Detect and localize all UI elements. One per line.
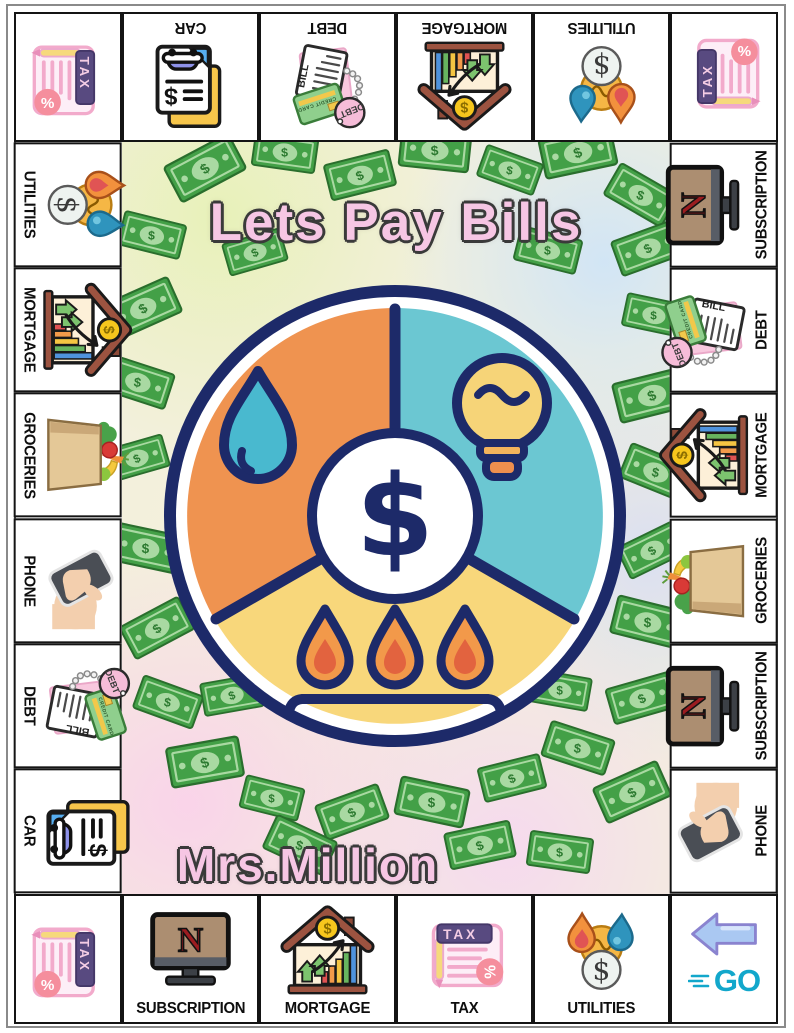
money-bill: $ (238, 774, 306, 822)
dollar-sign: $ (635, 690, 648, 707)
space-label: TAX (451, 999, 479, 1023)
dollar-sign: $ (142, 540, 150, 556)
space-label: GROCERIES (16, 412, 40, 499)
groceries-icon (39, 407, 112, 504)
subscription-icon (679, 657, 752, 754)
utilities-icon (553, 38, 650, 122)
space-left-phone: PHONE (14, 518, 122, 643)
mortgage-icon (416, 38, 513, 122)
space-label: DEBT (16, 686, 40, 725)
space-bottom-subscription: SUBSCRIPTION (122, 894, 259, 1024)
space-label: GROCERIES (752, 537, 776, 624)
svg-text:$: $ (356, 452, 434, 582)
dollar-sign: $ (268, 791, 275, 805)
space-left-car: CAR (14, 769, 122, 894)
speed-dashes-icon (688, 972, 710, 990)
space-left-utilities: UTILITIES (14, 142, 122, 267)
car-icon (142, 38, 239, 122)
page-title: Lets Pay Bills (122, 192, 670, 253)
space-label: UTILITIES (16, 171, 40, 239)
debt-icon (679, 282, 752, 379)
corner-go: GO (670, 894, 778, 1024)
space-right-mortgage: MORTGAGE (670, 393, 778, 518)
phone-icon (679, 783, 752, 880)
space-top-debt: DEBT (259, 12, 396, 142)
dollar-sign: $ (428, 794, 436, 810)
dollar-sign: $ (644, 614, 653, 630)
go-label: GO (714, 963, 760, 999)
subscription-icon (142, 915, 239, 999)
space-top-mortgage: MORTGAGE (396, 12, 533, 142)
money-bill: $ (476, 753, 547, 804)
tax-icon (21, 30, 116, 125)
utilities-icon (39, 156, 112, 253)
money-bill: $ (251, 142, 320, 174)
dollar-sign: $ (197, 159, 213, 177)
dollar-sign: $ (506, 770, 518, 786)
space-label: MORTGAGE (16, 287, 40, 372)
tax-icon (21, 912, 116, 1007)
space-right-debt: DEBT (670, 267, 778, 392)
dollar-sign: $ (645, 386, 659, 404)
space-label: PHONE (752, 806, 776, 857)
money-bill: $ (397, 142, 472, 174)
groceries-icon (679, 532, 752, 629)
space-label: UTILITIES (568, 14, 636, 38)
space-right-phone: PHONE (670, 769, 778, 894)
space-label: SUBSCRIPTION (752, 150, 776, 259)
mortgage-icon (279, 915, 376, 999)
go-arrow-icon (686, 909, 762, 959)
space-bottom-utilities: UTILITIES (533, 894, 670, 1024)
space-label: SUBSCRIPTION (752, 651, 776, 760)
space-right-subscription: SUBSCRIPTION (670, 142, 778, 267)
tax-icon (677, 30, 772, 125)
corner-tax-bottom-left (14, 894, 122, 1024)
space-top-car: CAR (122, 12, 259, 142)
money-bill: $ (526, 830, 595, 875)
debt-icon (39, 657, 112, 754)
utilities-wheel: $ (162, 283, 628, 749)
space-right-groceries: GROCERIES (670, 518, 778, 643)
dollar-sign: $ (431, 142, 440, 158)
mortgage-icon (39, 281, 112, 378)
mortgage-icon (679, 407, 752, 504)
space-left-mortgage: MORTGAGE (14, 267, 122, 392)
dollar-sign: $ (345, 804, 359, 821)
money-bill: $ (537, 142, 619, 180)
board-game-page: $ $ $ $ $ $ $ $ $ $ $ $ $ $ $ $ $ $ $ $ … (0, 0, 794, 1033)
debt-icon (279, 38, 376, 122)
money-bill: $ (393, 775, 471, 829)
space-label: DEBT (752, 310, 776, 349)
dollar-badge: $ (307, 428, 483, 604)
space-top-utilities: UTILITIES (533, 12, 670, 142)
space-label: SUBSCRIPTION (136, 999, 245, 1023)
space-label: CAR (16, 816, 40, 847)
space-label: DEBT (308, 14, 347, 38)
tax-icon (416, 915, 513, 999)
dollar-sign: $ (198, 753, 211, 771)
dollar-sign: $ (556, 845, 563, 859)
corner-tax-top-left (14, 12, 122, 142)
space-label: UTILITIES (568, 999, 636, 1023)
author-title: Mrs.Million (128, 838, 488, 892)
space-left-debt: DEBT (14, 643, 122, 768)
space-left-groceries: GROCERIES (14, 393, 122, 518)
space-bottom-mortgage: MORTGAGE (259, 894, 396, 1024)
space-label: CAR (175, 14, 206, 38)
dollar-sign: $ (135, 299, 150, 316)
corner-tax-top-right (670, 12, 778, 142)
dollar-sign: $ (571, 143, 585, 161)
car-icon (39, 783, 112, 880)
gas-flames-icon (289, 609, 501, 712)
dollar-sign: $ (281, 145, 288, 159)
dollar-sign: $ (506, 163, 515, 177)
space-bottom-tax: TAX (396, 894, 533, 1024)
subscription-icon (679, 156, 752, 253)
space-label: MORTGAGE (752, 413, 776, 498)
dollar-sign: $ (354, 167, 367, 184)
space-label: MORTGAGE (285, 999, 370, 1023)
phone-icon (39, 532, 112, 629)
space-right-subscription: SUBSCRIPTION (670, 643, 778, 768)
money-bill: $ (314, 783, 391, 842)
space-label: MORTGAGE (422, 14, 507, 38)
dollar-sign: $ (624, 783, 639, 800)
utilities-icon (553, 915, 650, 999)
money-bill: $ (475, 143, 544, 196)
space-label: PHONE (16, 555, 40, 606)
